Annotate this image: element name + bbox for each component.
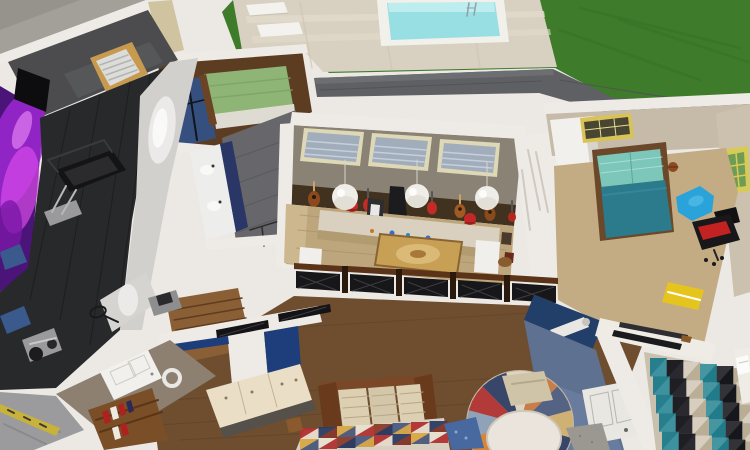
chair-speckle	[579, 435, 581, 437]
poster-roll-end	[582, 318, 590, 326]
sofa-cushion	[368, 386, 399, 428]
sofa-cushion	[338, 388, 371, 431]
sink-faucet	[219, 201, 222, 204]
railing-post	[396, 269, 402, 296]
rug-medallion-center	[410, 250, 426, 258]
wall-art	[501, 232, 512, 245]
railing-post	[504, 275, 510, 302]
chair-wheel	[704, 258, 708, 262]
guitar-soundhole	[458, 207, 462, 211]
lamp-shade	[477, 197, 497, 209]
pool-shallow-end	[388, 2, 495, 12]
dresser-handle	[225, 397, 228, 400]
geometric-carpet-pattern	[745, 442, 750, 450]
chair-wheel	[720, 256, 724, 260]
door-knob	[624, 428, 628, 432]
lamp-shade	[334, 196, 356, 210]
chair-pattern-dot	[465, 437, 468, 440]
guitar-soundhole	[488, 210, 492, 214]
shelf-paper	[736, 355, 750, 375]
dresser-handle	[295, 379, 298, 382]
wall-glare	[118, 284, 138, 316]
acoustic-guitar	[455, 204, 466, 218]
chair-speckle	[591, 441, 593, 443]
electric-guitar	[508, 212, 516, 222]
white-door	[474, 240, 500, 274]
dresser-handle	[281, 383, 284, 386]
electric-guitar	[427, 202, 437, 215]
guitar-case	[388, 186, 407, 216]
floorplan-dollhouse-view	[0, 0, 750, 450]
chair-wheel	[712, 262, 716, 266]
guitar-soundhole	[312, 195, 316, 199]
chair-pattern-dot	[455, 431, 458, 434]
home-design-3d-render	[0, 0, 750, 450]
railing-post	[342, 266, 348, 293]
sink-faucet	[212, 165, 215, 168]
basket	[498, 257, 512, 267]
bike-wheel	[29, 347, 43, 361]
dresser-handle	[251, 391, 254, 394]
sofa-cushion	[396, 384, 425, 426]
lamp-highlight	[479, 190, 487, 198]
lamp-highlight	[337, 189, 345, 197]
desk-item	[370, 229, 374, 233]
hall-door-knob	[151, 373, 154, 376]
cabinet-paper	[370, 204, 380, 216]
railing-post	[450, 272, 456, 299]
dining-chair-beige	[502, 371, 553, 406]
lamp-shade	[407, 195, 427, 207]
lamp-highlight	[409, 188, 417, 196]
